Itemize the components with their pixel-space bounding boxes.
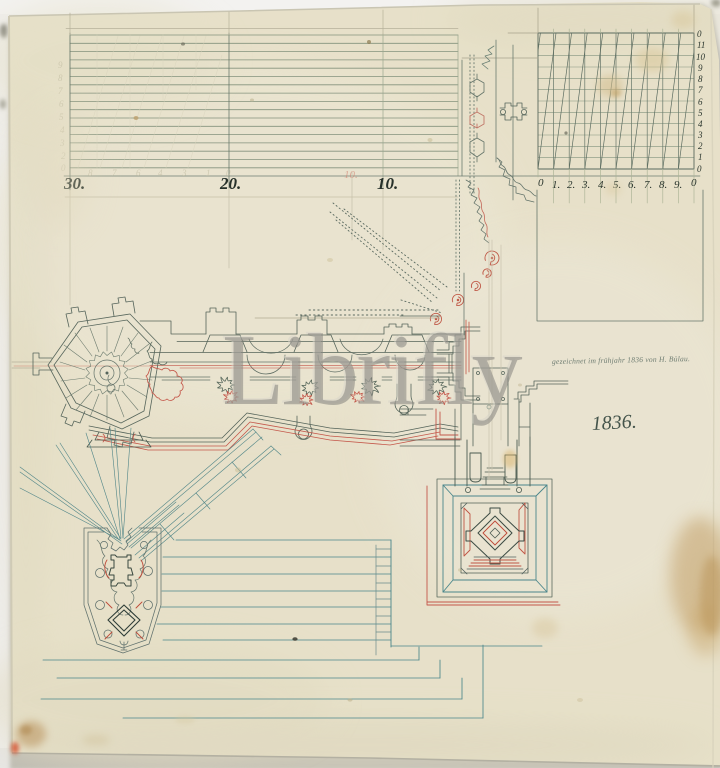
- svg-text:10.: 10.: [344, 169, 358, 181]
- svg-text:0: 0: [226, 168, 231, 178]
- svg-text:7.: 7.: [644, 179, 652, 191]
- svg-text:1: 1: [206, 168, 211, 178]
- svg-text:6: 6: [59, 99, 64, 109]
- svg-text:1.: 1.: [552, 179, 560, 191]
- svg-text:9.: 9.: [674, 179, 682, 191]
- svg-text:6: 6: [698, 97, 703, 107]
- svg-text:8.: 8.: [659, 179, 667, 191]
- svg-text:11: 11: [697, 40, 705, 50]
- svg-text:4: 4: [158, 168, 163, 178]
- svg-text:9: 9: [698, 63, 703, 73]
- svg-text:6: 6: [136, 168, 141, 178]
- svg-text:3: 3: [697, 130, 703, 140]
- svg-text:2: 2: [698, 141, 703, 151]
- svg-text:0: 0: [538, 177, 544, 189]
- svg-text:1: 1: [698, 152, 703, 162]
- svg-text:7: 7: [58, 86, 63, 96]
- svg-text:0: 0: [697, 29, 702, 39]
- svg-text:Librifly: Librifly: [222, 314, 522, 427]
- svg-text:0: 0: [691, 177, 697, 189]
- svg-text:7: 7: [112, 168, 117, 178]
- svg-text:0: 0: [697, 164, 702, 174]
- svg-text:7: 7: [698, 85, 703, 95]
- svg-text:9: 9: [58, 60, 63, 70]
- svg-text:5: 5: [698, 108, 703, 118]
- svg-text:8: 8: [698, 74, 703, 84]
- svg-text:3.: 3.: [581, 179, 590, 191]
- svg-text:6.: 6.: [628, 179, 636, 191]
- svg-text:10: 10: [696, 52, 706, 62]
- svg-text:1836.: 1836.: [591, 411, 637, 435]
- svg-text:10.: 10.: [377, 174, 398, 193]
- svg-text:2.: 2.: [567, 179, 575, 191]
- svg-text:4: 4: [698, 119, 703, 129]
- svg-text:8: 8: [58, 73, 63, 83]
- svg-text:3: 3: [181, 168, 187, 178]
